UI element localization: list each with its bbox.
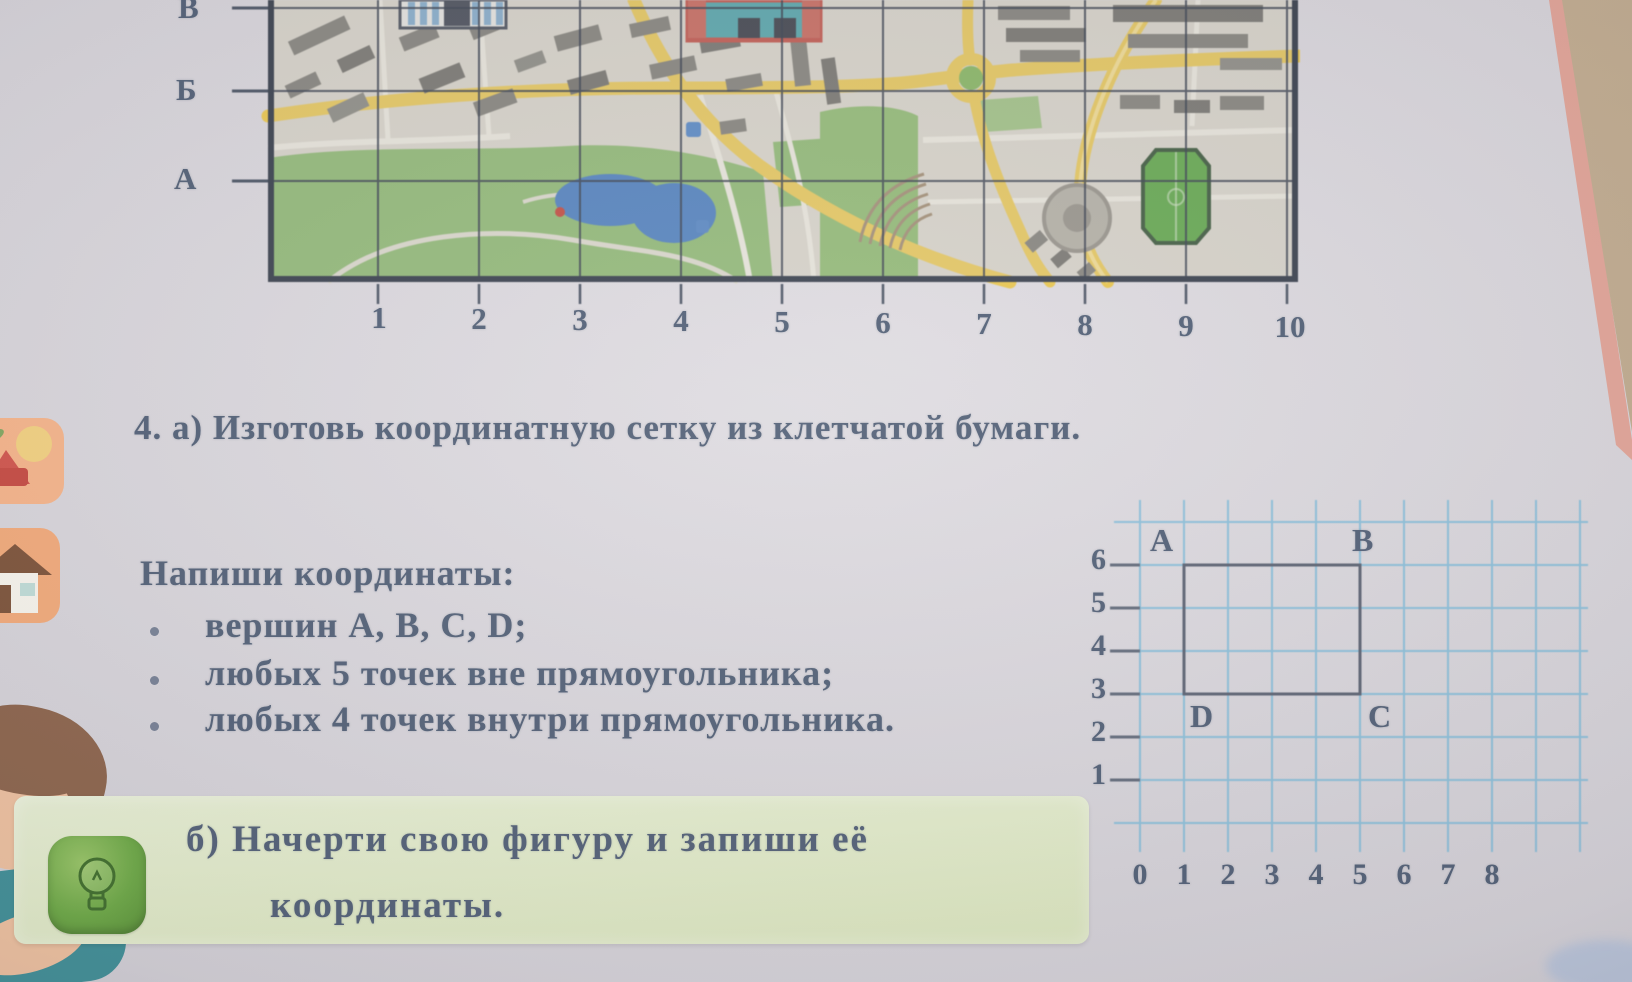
vertex-label-b: B xyxy=(1352,522,1373,559)
task-part-b-line1: б) Начерти свою фигуру и запиши её xyxy=(186,818,869,861)
finger-shadow xyxy=(1546,940,1632,982)
grid-x-label: 8 xyxy=(1482,858,1502,892)
map-col-label: 8 xyxy=(1076,307,1094,343)
map-col-label: 1 xyxy=(370,300,388,336)
coordinate-grid-figure: 6 5 4 3 2 1 0 1 2 3 4 5 6 7 8 A B C D xyxy=(1096,490,1606,910)
grid-y-label: 1 xyxy=(1076,758,1106,792)
task-part-b-box: б) Начерти свою фигуру и запиши её коорд… xyxy=(14,796,1089,944)
map-col-label: 9 xyxy=(1177,308,1195,344)
grid-x-label: 1 xyxy=(1174,858,1194,892)
task-part-b-line2: координаты. xyxy=(270,884,505,927)
map-col-label: 3 xyxy=(571,302,589,338)
map-col-label: 6 xyxy=(874,305,892,341)
map-col-label: 7 xyxy=(975,306,993,342)
grid-y-label: 3 xyxy=(1076,672,1106,706)
house-icon xyxy=(0,528,60,623)
grid-y-label: 6 xyxy=(1076,543,1106,577)
grid-x-label: 0 xyxy=(1130,858,1150,892)
grid-x-label: 3 xyxy=(1262,858,1282,892)
lightbulb-icon xyxy=(48,836,146,934)
grid-x-label: 7 xyxy=(1438,858,1458,892)
vertex-label-a: A xyxy=(1150,522,1173,559)
map-row-label: А xyxy=(174,161,196,197)
city-map-figure: В Б А 1 2 3 4 5 6 7 8 9 10 xyxy=(0,0,1632,360)
bullet-item: любых 5 точек вне прямоугольника; xyxy=(205,652,834,694)
grid-x-label: 2 xyxy=(1218,858,1238,892)
grid-x-label: 6 xyxy=(1394,858,1414,892)
column-ticks xyxy=(378,284,1287,304)
map-col-label: 4 xyxy=(672,303,690,339)
grid-y-label: 4 xyxy=(1076,629,1106,663)
grid-x-label: 5 xyxy=(1350,858,1370,892)
city-map-illustration xyxy=(228,0,1300,312)
grid-y-label: 5 xyxy=(1076,586,1106,620)
map-col-label: 2 xyxy=(470,301,488,337)
map-row-label: Б xyxy=(176,72,197,108)
textbook-page-photo: В Б А 1 2 3 4 5 6 7 8 9 10 4. а) Изготов… xyxy=(0,0,1632,982)
vertex-label-c: C xyxy=(1368,698,1391,735)
bullet-dot xyxy=(150,676,159,685)
map-col-label: 10 xyxy=(1272,309,1308,345)
bullet-dot xyxy=(150,722,159,731)
grid-y-label: 2 xyxy=(1076,715,1106,749)
bullet-dot xyxy=(150,627,159,636)
task-part-a: 4. а) Изготовь координатную сетку из кле… xyxy=(134,408,1081,448)
row-ticks xyxy=(232,8,268,181)
vertex-label-d: D xyxy=(1190,698,1213,735)
map-col-label: 5 xyxy=(773,304,791,340)
bullet-item: любых 4 точек внутри прямоугольника. xyxy=(205,698,895,740)
y-axis-ticks xyxy=(1110,565,1140,780)
bullet-item: вершин A, B, C, D; xyxy=(205,604,527,646)
write-coordinates-heading: Напиши координаты: xyxy=(140,552,516,594)
map-row-label: В xyxy=(178,0,199,26)
grid-x-label: 4 xyxy=(1306,858,1326,892)
craft-icon xyxy=(0,418,64,504)
